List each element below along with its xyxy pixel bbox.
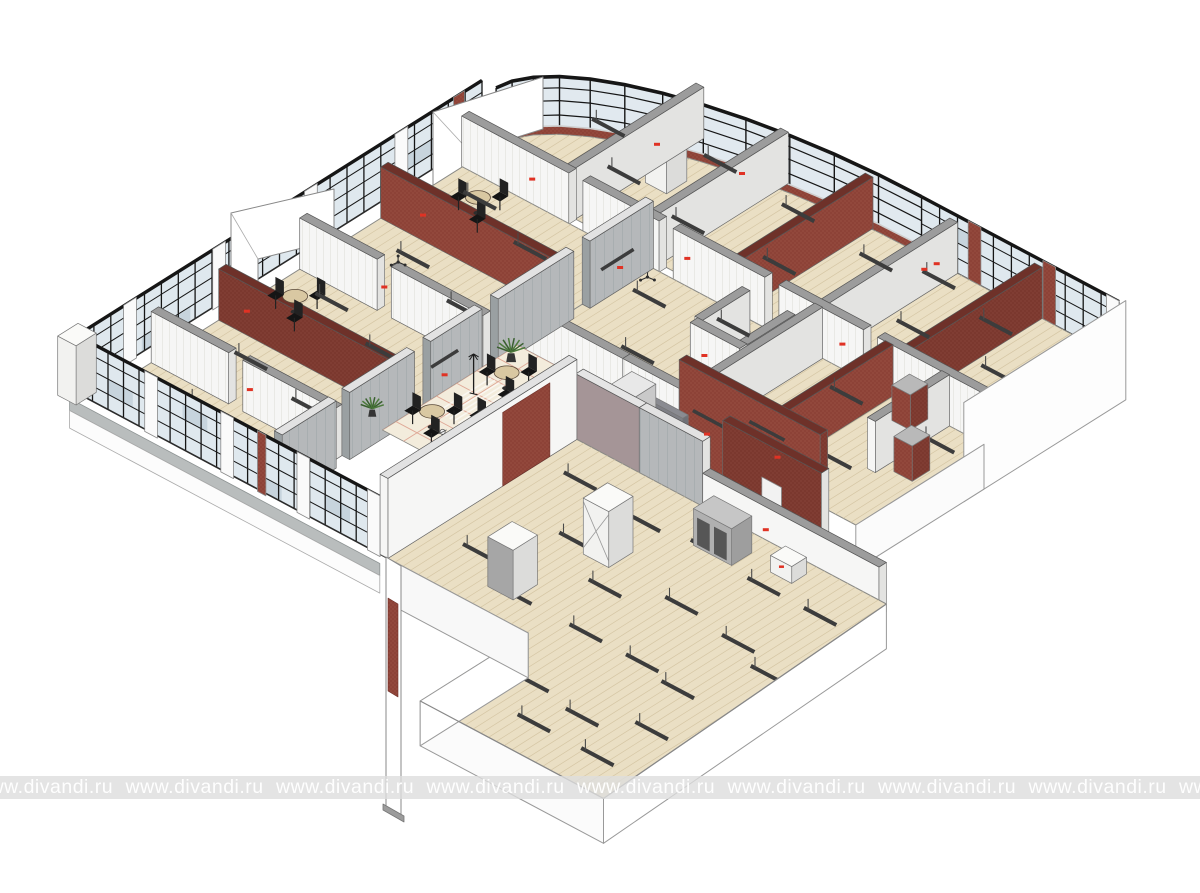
long-gray-wall-part (342, 388, 350, 459)
wall-marker (921, 268, 927, 271)
ceiling-lamp-part (397, 260, 400, 263)
wall-marker (420, 214, 426, 217)
curtain-wall-sw-facade-part (297, 452, 310, 519)
potted-plant-part (368, 410, 376, 417)
curtain-wall-ne-facade-part (1043, 260, 1056, 328)
curtain-wall-sw-facade-part (221, 411, 234, 479)
long-gray-wall-part (423, 337, 431, 408)
right-wing-rooms-part (868, 417, 876, 472)
ceiling-lamp-part (646, 275, 649, 278)
wall-marker (244, 310, 250, 313)
wall-marker (442, 373, 448, 376)
long-gray-wall-part (490, 295, 498, 366)
left-wing-rooms-part (377, 255, 384, 311)
wall-marker (529, 178, 535, 181)
wall-marker (247, 388, 253, 391)
watermark-text: www.divandi.ru (126, 776, 264, 799)
long-gray-wall-part (582, 237, 590, 308)
wall-marker (654, 143, 660, 146)
wall-marker (839, 343, 845, 346)
watermark-text: www.divandi.ru (276, 776, 414, 799)
ceiling-lamp-part (653, 279, 656, 282)
watermark-text: www.divandi.ru (427, 776, 565, 799)
wall-marker (381, 286, 387, 289)
wall-marker (934, 262, 940, 265)
wall-marker (775, 456, 781, 459)
exterior-shell-part (388, 598, 398, 697)
wall-marker (763, 528, 769, 531)
watermark-text: www.divandi.ru (728, 776, 866, 799)
watermark-text: www.divandi.ru (577, 776, 715, 799)
ceiling-lamp-part (404, 264, 407, 267)
curtain-wall-sw-facade-part (368, 489, 381, 556)
wall-marker (704, 433, 710, 436)
curtain-wall-ne-facade-part (968, 221, 981, 289)
floorplan-image: www.divandi.ruwww.divandi.ruwww.divandi.… (0, 0, 1200, 893)
potted-plant-part (506, 353, 516, 362)
ceiling-lamp-part (639, 279, 642, 282)
top-wing-rooms-part (659, 216, 666, 272)
curtain-wall-sw-facade-part (58, 336, 76, 405)
top-wing-rooms-part (765, 273, 773, 329)
curtain-wall-sw-facade-part (258, 431, 266, 496)
top-wing-rooms-part (569, 168, 577, 224)
wall-marker (739, 172, 745, 175)
floorplan-canvas (0, 0, 1200, 893)
ceiling-lamp-part (390, 264, 393, 267)
wing-west-wall-part (380, 474, 388, 558)
watermark-text: www.divandi.ru (878, 776, 1016, 799)
wall-marker (701, 354, 707, 357)
watermark-text: www.divandi.ru (1179, 776, 1200, 799)
wall-marker (617, 266, 623, 269)
wing-cabinets-part (779, 565, 784, 568)
watermark-text: www.divandi.ru (1029, 776, 1167, 799)
curtain-wall-nw-facade-part (124, 297, 137, 366)
left-wing-rooms-part (229, 348, 236, 404)
watermark-band: www.divandi.ruwww.divandi.ruwww.divandi.… (0, 776, 1200, 799)
watermark-text: www.divandi.ru (0, 776, 113, 799)
ceiling-lamp-part (397, 255, 400, 258)
curtain-wall-sw-facade-part (145, 371, 158, 439)
wall-marker (684, 257, 690, 260)
